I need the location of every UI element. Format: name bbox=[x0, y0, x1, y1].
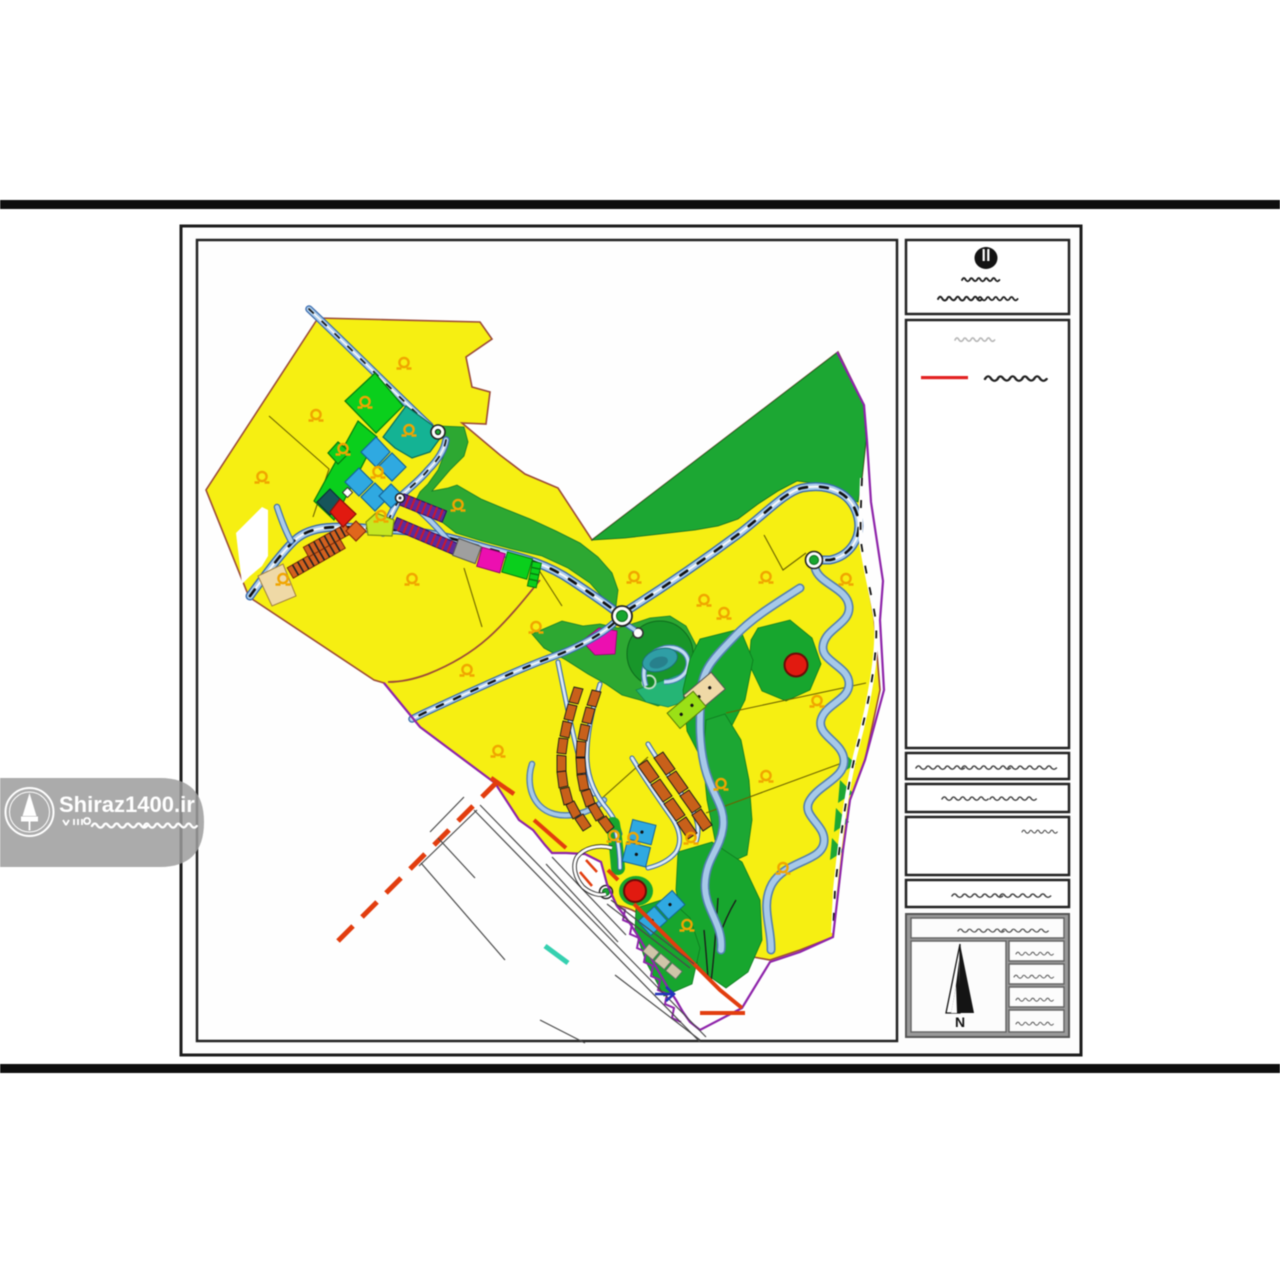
svg-text:Shiraz1400.ir: Shiraz1400.ir bbox=[59, 792, 195, 817]
svg-text:N: N bbox=[955, 1014, 965, 1030]
